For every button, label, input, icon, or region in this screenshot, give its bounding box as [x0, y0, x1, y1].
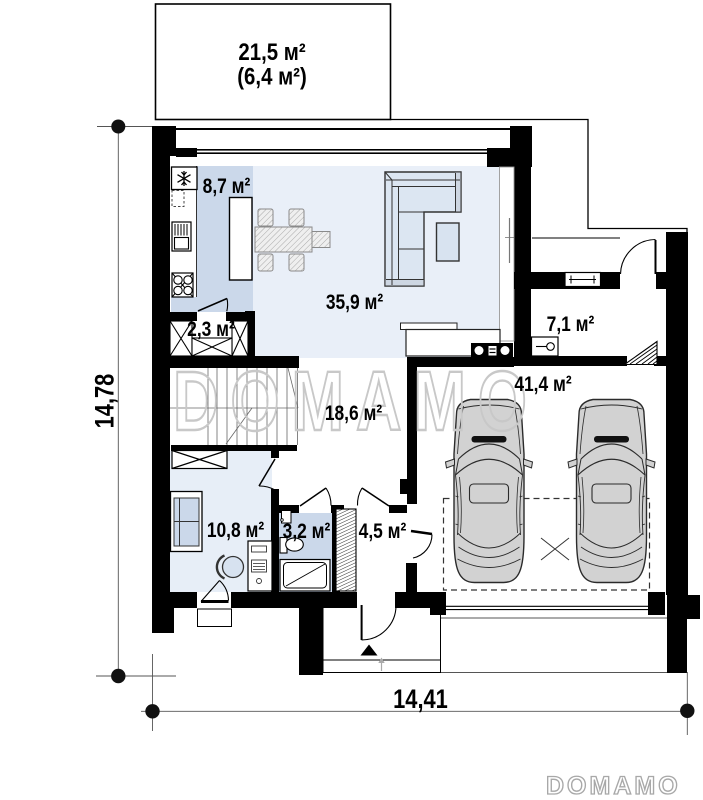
- svg-text:7,1 м²: 7,1 м²: [547, 312, 595, 336]
- svg-text:14,78: 14,78: [90, 374, 120, 429]
- svg-text:3,2 м²: 3,2 м²: [283, 519, 331, 543]
- svg-text:21,5 м²: 21,5 м²: [238, 38, 305, 65]
- svg-text:DOMAMO: DOMAMO: [546, 772, 681, 800]
- svg-text:2,3 м²: 2,3 м²: [187, 317, 235, 341]
- svg-text:18,6 м²: 18,6 м²: [325, 401, 383, 425]
- svg-text:35,9 м²: 35,9 м²: [326, 290, 384, 314]
- svg-text:10,8 м²: 10,8 м²: [207, 518, 265, 542]
- svg-text:4,5 м²: 4,5 м²: [359, 519, 407, 543]
- svg-text:14,41: 14,41: [393, 685, 448, 715]
- svg-text:8,7 м²: 8,7 м²: [203, 174, 251, 198]
- svg-text:41,4 м²: 41,4 м²: [514, 372, 572, 396]
- svg-text:(6,4 м²): (6,4 м²): [237, 63, 306, 90]
